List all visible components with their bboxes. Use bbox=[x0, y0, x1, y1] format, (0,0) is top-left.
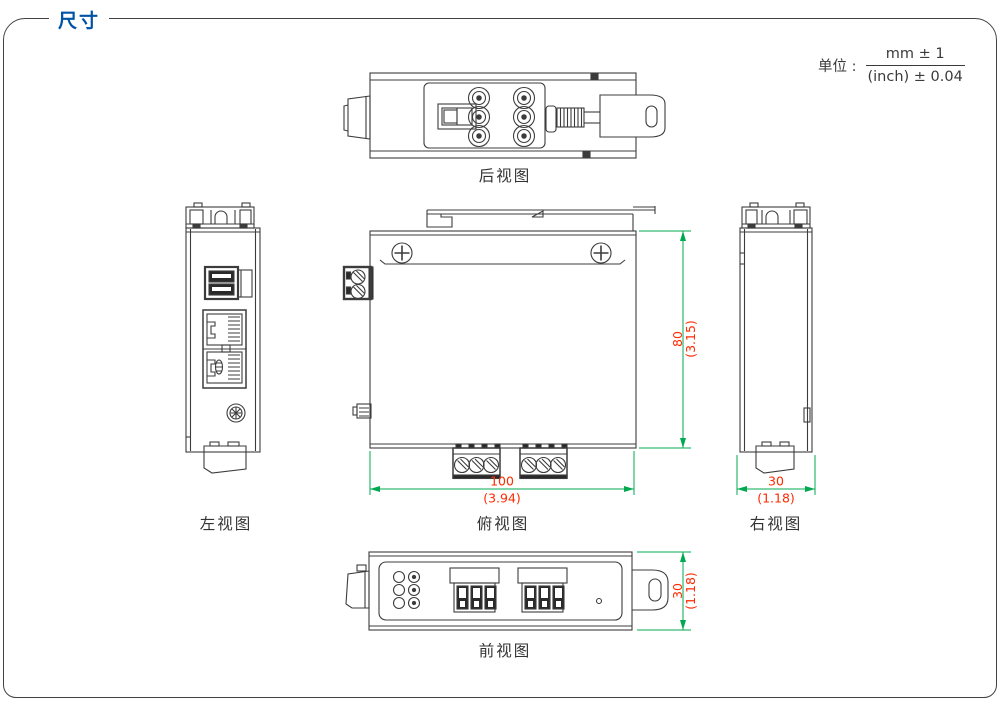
right-view-label: 右视图 bbox=[750, 512, 803, 534]
din-slide-tab bbox=[600, 95, 665, 137]
switch-icon bbox=[438, 104, 476, 129]
top-view-drawing bbox=[344, 206, 655, 479]
line-art bbox=[0, 0, 1000, 707]
front-terminal-socket-a bbox=[450, 568, 499, 612]
left-view-drawing bbox=[186, 203, 260, 473]
side-button bbox=[353, 404, 371, 418]
dim-front-view-height: 30 (1.18) bbox=[671, 572, 697, 610]
terminal-block-b bbox=[520, 444, 567, 479]
front-view-drawing bbox=[346, 552, 668, 630]
phillips-screw-icons bbox=[392, 243, 611, 263]
right-view-drawing bbox=[740, 203, 812, 473]
reset-hole bbox=[597, 599, 602, 604]
side-terminal bbox=[344, 267, 373, 299]
power-terminal bbox=[205, 267, 252, 299]
rear-view-label: 后视图 bbox=[479, 164, 532, 186]
led-indicators bbox=[394, 572, 420, 609]
din-clip bbox=[186, 203, 254, 228]
ground-screw-icon bbox=[227, 404, 245, 422]
screw-icons bbox=[469, 88, 535, 147]
din-clip bbox=[742, 203, 810, 228]
left-view-label: 左视图 bbox=[200, 512, 253, 534]
rj45-ports bbox=[203, 310, 246, 388]
top-view-label: 俯视图 bbox=[477, 512, 530, 534]
front-terminal-socket-b bbox=[518, 568, 567, 612]
dim-top-view-height: 80 (3.15) bbox=[671, 320, 697, 358]
dimension-lines bbox=[370, 231, 815, 630]
mounting-tab bbox=[632, 570, 668, 610]
dim-right-view-width: 30 (1.18) bbox=[757, 474, 795, 507]
rear-view-drawing bbox=[344, 73, 665, 158]
front-left-connector bbox=[346, 565, 369, 608]
din-bracket bbox=[427, 206, 655, 231]
dim-top-view-width: 100 (3.94) bbox=[483, 474, 521, 507]
spring-icon bbox=[557, 108, 600, 127]
front-view-label: 前视图 bbox=[479, 639, 532, 661]
